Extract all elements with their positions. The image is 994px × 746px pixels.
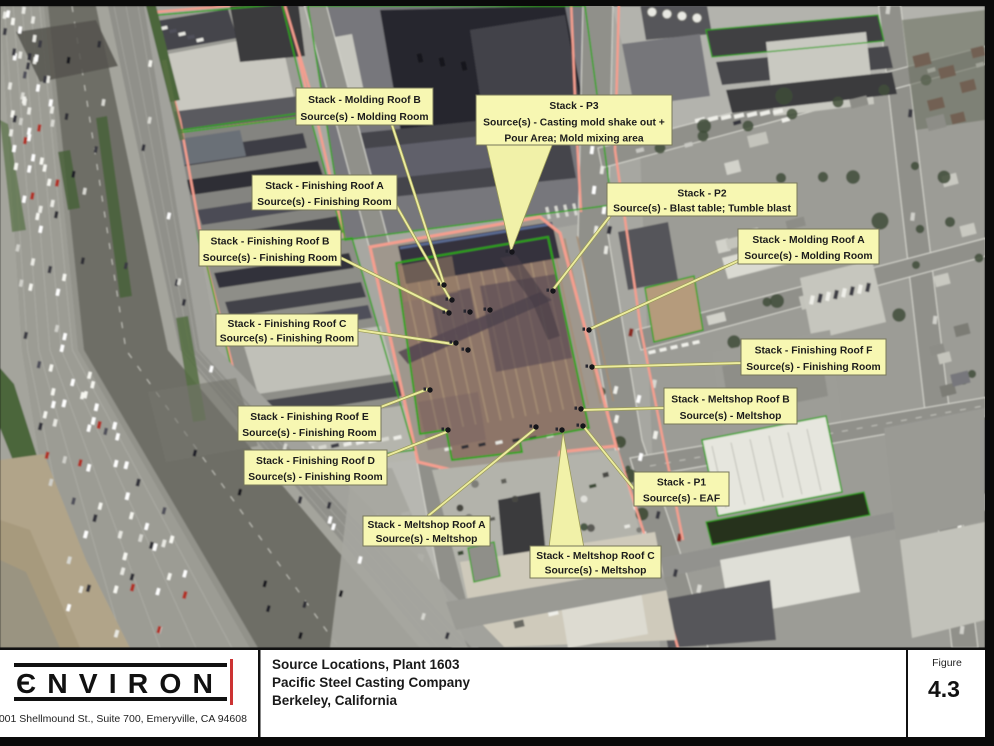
svg-text:Source Locations, Plant 1603: Source Locations, Plant 1603 (272, 657, 460, 672)
svg-text:Source(s) - Molding Room: Source(s) - Molding Room (744, 251, 872, 262)
svg-text:ЄNVIRON: ЄNVIRON (16, 668, 224, 699)
svg-text:Source(s) - Finishing Room: Source(s) - Finishing Room (220, 334, 354, 345)
svg-text:2001 Shellmound St., Suite 700: 2001 Shellmound St., Suite 700, Emeryvil… (0, 713, 247, 725)
svg-text:Source(s) - Finishing Room: Source(s) - Finishing Room (248, 472, 382, 483)
svg-text:Stack - Finishing Roof F: Stack - Finishing Roof F (755, 346, 873, 357)
svg-text:Source(s) - EAF: Source(s) - EAF (643, 493, 720, 504)
svg-text:Stack - Finishing Roof D: Stack - Finishing Roof D (256, 456, 375, 467)
svg-text:Source(s) - Finishing Room: Source(s) - Finishing Room (746, 362, 880, 373)
svg-text:Stack - P1: Stack - P1 (657, 478, 706, 489)
svg-text:Pour Area; Mold mixing area: Pour Area; Mold mixing area (504, 133, 644, 144)
svg-text:Source(s) - Blast table; Tumbl: Source(s) - Blast table; Tumble blast (613, 204, 791, 215)
svg-text:Source(s) - Finishing Room: Source(s) - Finishing Room (257, 197, 391, 208)
svg-text:Stack - Finishing Roof A: Stack - Finishing Roof A (265, 181, 384, 192)
svg-text:4.3: 4.3 (928, 676, 960, 702)
svg-text:Stack - P3: Stack - P3 (549, 101, 598, 112)
svg-text:Stack - Finishing Roof E: Stack - Finishing Roof E (250, 412, 369, 423)
svg-text:Source(s) - Meltshop: Source(s) - Meltshop (376, 534, 478, 545)
svg-text:Source(s) - Finishing Room: Source(s) - Finishing Room (203, 253, 337, 264)
svg-text:Source(s) - Molding Room: Source(s) - Molding Room (300, 112, 428, 123)
svg-text:Stack - Finishing Roof C: Stack - Finishing Roof C (228, 319, 348, 330)
svg-text:Source(s) - Meltshop: Source(s) - Meltshop (545, 566, 647, 577)
svg-text:Stack - Meltshop Roof A: Stack - Meltshop Roof A (367, 520, 486, 531)
svg-text:Source(s) - Finishing Room: Source(s) - Finishing Room (242, 428, 376, 439)
svg-text:Figure: Figure (932, 657, 962, 669)
svg-text:Source(s) - Meltshop: Source(s) - Meltshop (680, 411, 782, 422)
svg-text:Source(s) - Casting mold shake: Source(s) - Casting mold shake out + (483, 117, 665, 128)
svg-text:Stack - Meltshop Roof C: Stack - Meltshop Roof C (536, 551, 655, 562)
svg-text:Stack - Molding Roof B: Stack - Molding Roof B (308, 95, 421, 106)
svg-text:Stack - Meltshop Roof B: Stack - Meltshop Roof B (671, 395, 789, 406)
svg-text:Stack - P2: Stack - P2 (677, 188, 726, 199)
svg-text:Pacific Steel Casting Company: Pacific Steel Casting Company (272, 675, 471, 690)
svg-text:Stack - Molding Roof A: Stack - Molding Roof A (752, 235, 865, 246)
svg-text:Stack - Finishing Roof B: Stack - Finishing Roof B (211, 237, 330, 248)
svg-text:Berkeley, California: Berkeley, California (272, 693, 398, 708)
